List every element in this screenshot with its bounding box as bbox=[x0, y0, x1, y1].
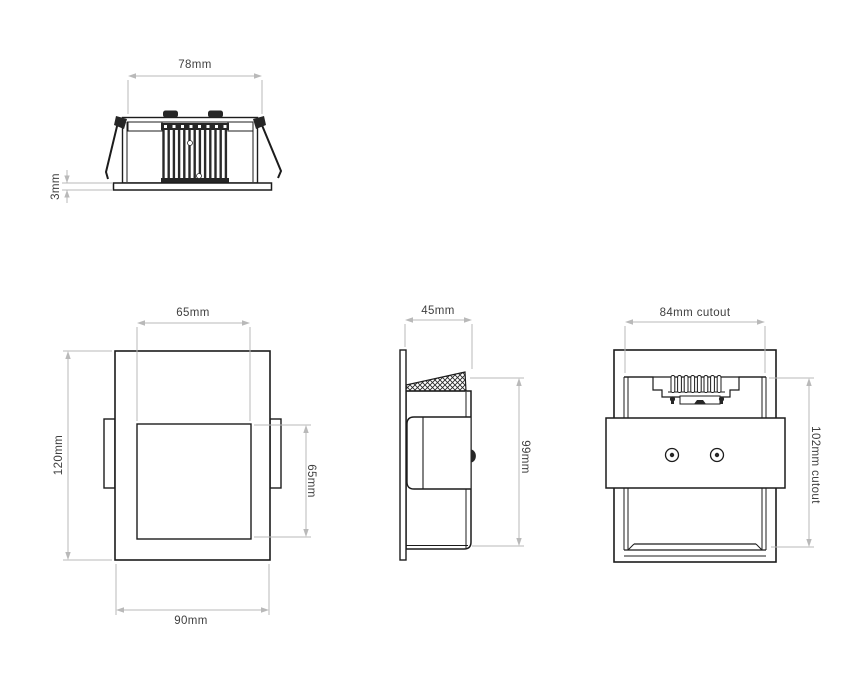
terminal-screw-stem-left bbox=[671, 399, 674, 404]
dimension-label-65mm-top: 65mm bbox=[176, 307, 210, 319]
dimension-45mm: 45mm bbox=[405, 305, 472, 369]
dimension-label-120mm: 120mm bbox=[53, 435, 65, 475]
driver-box-left bbox=[128, 122, 162, 131]
screw-tab-right bbox=[208, 111, 223, 118]
rear-view: 84mm cutout 102mm cutout bbox=[606, 307, 821, 562]
mounting-tab-left bbox=[104, 419, 115, 488]
rear-screw-left-center bbox=[670, 453, 674, 457]
rear-mounting-band bbox=[606, 418, 785, 488]
fixing-hole-lower bbox=[197, 174, 202, 179]
dimension-label-90mm: 90mm bbox=[174, 615, 208, 627]
dimension-3mm: 3mm bbox=[50, 170, 112, 203]
dimension-label-99mm: 99mm bbox=[519, 440, 531, 474]
dimension-label-78mm: 78mm bbox=[178, 59, 212, 71]
mounting-tab-right bbox=[270, 419, 281, 488]
heatsink-fins bbox=[164, 130, 226, 178]
side-view: 45mm 99mm bbox=[400, 305, 531, 560]
terminal-screw-stem-right bbox=[720, 399, 723, 404]
front-view: 65mm 120mm 65mm 90mm bbox=[53, 307, 317, 627]
spring-clip-right bbox=[259, 118, 281, 178]
dimension-99mm: 99mm bbox=[470, 378, 531, 546]
recessed-can-body bbox=[106, 111, 281, 191]
front-aperture bbox=[137, 424, 251, 539]
top-profile-view: 78mm bbox=[50, 59, 281, 203]
dimension-label-45mm: 45mm bbox=[421, 305, 455, 317]
arrowhead-right bbox=[254, 73, 262, 78]
bezel-flange bbox=[114, 183, 272, 190]
dimension-90mm: 90mm bbox=[116, 564, 269, 627]
side-clip-drum bbox=[407, 417, 471, 489]
rear-screw-right-center bbox=[715, 453, 719, 457]
vent-strip bbox=[161, 123, 229, 130]
arrowhead-up bbox=[64, 190, 69, 198]
side-latch-bump bbox=[471, 450, 476, 463]
dimension-label-65mm-right: 65mm bbox=[305, 464, 317, 498]
drawing-page: 78mm bbox=[0, 0, 842, 694]
dimension-78mm: 78mm bbox=[128, 59, 262, 114]
spring-clip-left bbox=[106, 118, 119, 179]
screw-tab-left bbox=[163, 111, 178, 118]
side-front-plate bbox=[400, 350, 406, 560]
dimension-120mm: 120mm bbox=[53, 351, 112, 560]
fixing-hole-upper bbox=[188, 141, 193, 146]
dimension-label-84mm-cutout: 84mm cutout bbox=[660, 307, 731, 319]
arrowhead-down bbox=[64, 176, 69, 184]
dimension-label-3mm: 3mm bbox=[50, 173, 62, 200]
dimension-label-102mm-cutout: 102mm cutout bbox=[809, 426, 821, 504]
driver-box-right bbox=[228, 122, 253, 131]
arrowhead-left bbox=[128, 73, 136, 78]
technical-drawing-canvas: 78mm bbox=[0, 0, 842, 694]
side-heatsink-wedge bbox=[406, 372, 466, 391]
